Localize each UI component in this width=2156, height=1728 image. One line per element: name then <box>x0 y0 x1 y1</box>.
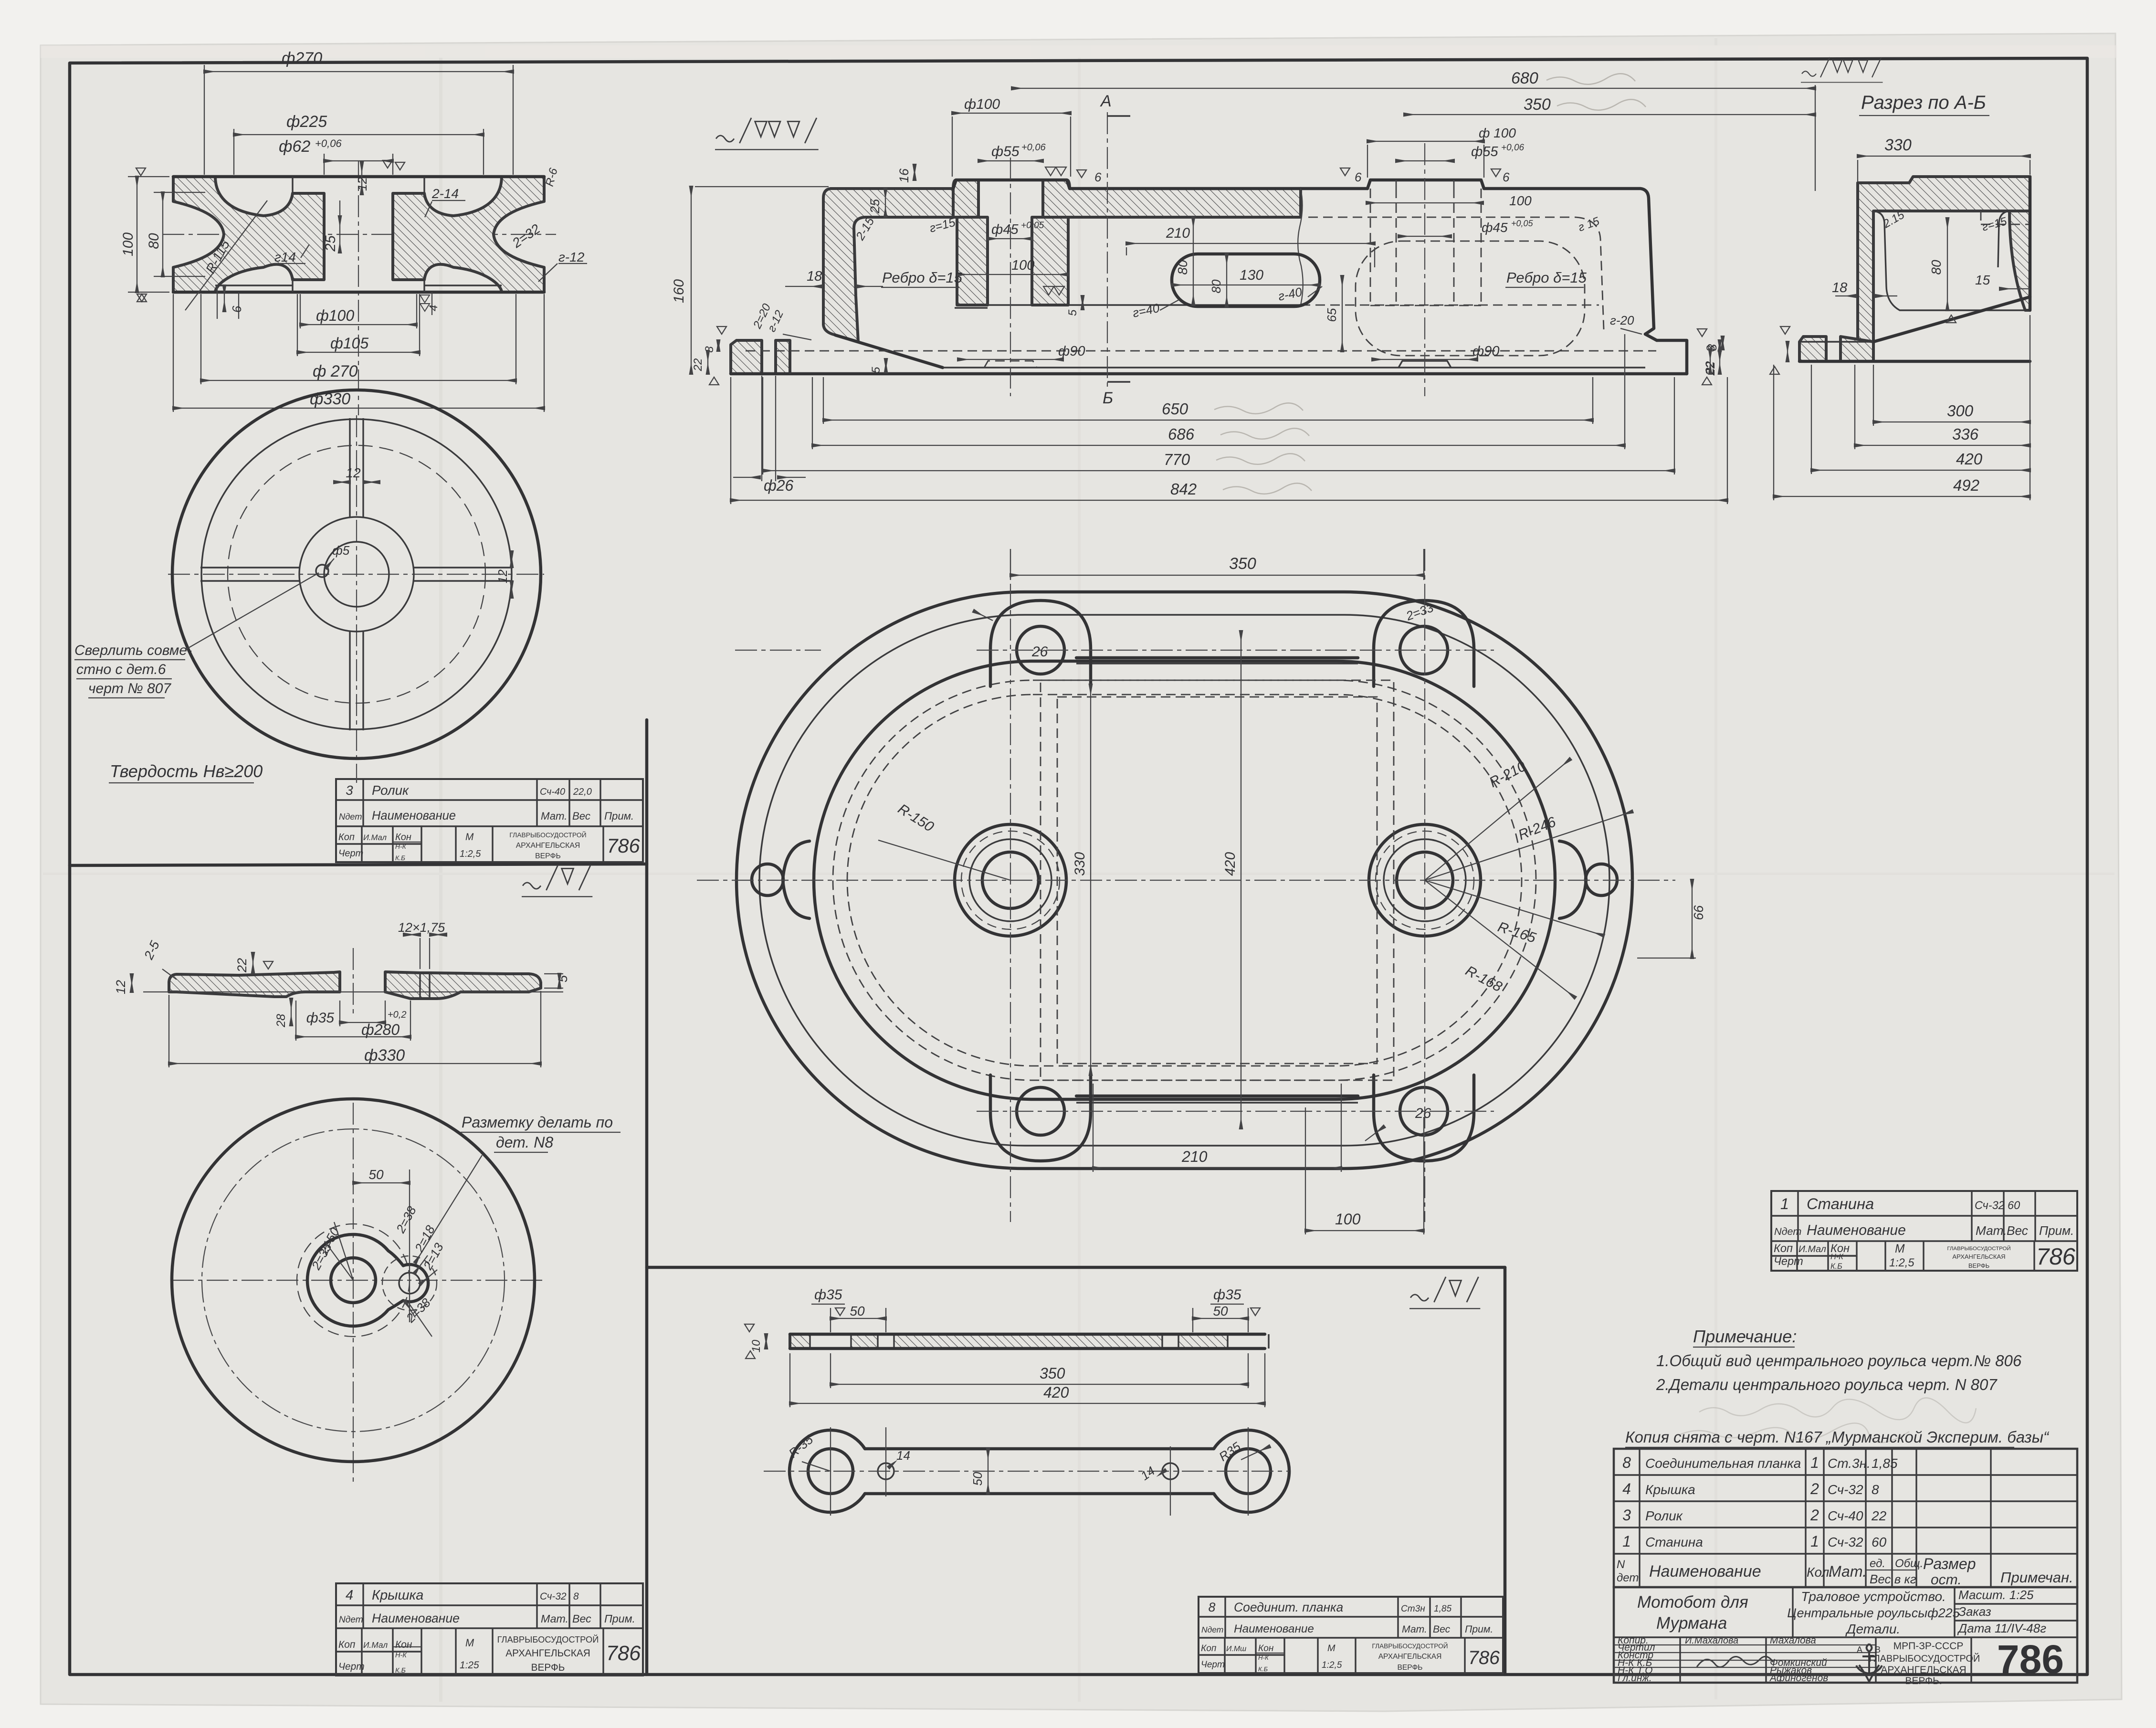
svg-text:Коп: Коп <box>1201 1644 1217 1654</box>
svg-text:1:2,5: 1:2,5 <box>460 849 481 859</box>
svg-text:Прим.: Прим. <box>604 810 634 822</box>
svg-text:Мат.: Мат. <box>541 810 567 822</box>
svg-text:786: 786 <box>606 1642 641 1665</box>
svg-text:Ст.3н.: Ст.3н. <box>1828 1456 1871 1471</box>
svg-text:Н-К: Н-К <box>395 843 407 850</box>
svg-text:4: 4 <box>346 1588 353 1603</box>
svg-text:Н-К: Н-К <box>395 1652 407 1659</box>
svg-text:Наименование: Наименование <box>1807 1222 1906 1238</box>
svg-text:Копия снята с черт. N167 „Мур: Копия снята с черт. N167 „Мурманской Экс… <box>1625 1428 2050 1446</box>
svg-text:Станина: Станина <box>1645 1535 1703 1549</box>
svg-text:80: 80 <box>1175 260 1190 275</box>
svg-text:ГЛАВРЫБОСУДОСТРОЙ: ГЛАВРЫБОСУДОСТРОЙ <box>509 831 586 839</box>
svg-text:АРХАНГЕЛЬСКАЯ: АРХАНГЕЛЬСКАЯ <box>505 1648 590 1659</box>
svg-text:ф55: ф55 <box>1471 144 1498 159</box>
svg-text:2-14: 2-14 <box>431 186 459 201</box>
svg-text:ГЛАВРЫБОСУДОСТРОЙ: ГЛАВРЫБОСУДОСТРОЙ <box>497 1634 599 1644</box>
svg-text:12: 12 <box>355 177 369 191</box>
svg-text:100: 100 <box>1509 193 1532 208</box>
svg-text:Мотобот для: Мотобот для <box>1637 1593 1748 1612</box>
svg-text:Наименование: Наименование <box>372 809 456 822</box>
svg-text:80: 80 <box>146 233 162 249</box>
svg-text:АРХАНГЕЛЬСКАЯ: АРХАНГЕЛЬСКАЯ <box>1881 1665 1966 1675</box>
svg-text:5: 5 <box>1066 309 1079 316</box>
svg-text:АРХАНГЕЛЬСКАЯ: АРХАНГЕЛЬСКАЯ <box>1378 1653 1442 1661</box>
svg-text:100: 100 <box>120 232 136 256</box>
svg-text:26: 26 <box>1031 644 1048 660</box>
svg-text:786: 786 <box>1997 1637 2064 1682</box>
svg-text:Nдет: Nдет <box>339 1615 363 1625</box>
svg-text:Вес: Вес <box>572 1612 591 1625</box>
svg-text:Коп: Коп <box>338 1639 356 1650</box>
svg-text:ф35: ф35 <box>814 1287 842 1303</box>
svg-text:И.Мш: И.Мш <box>1226 1645 1246 1653</box>
svg-text:1: 1 <box>1622 1533 1631 1550</box>
svg-text:Мурмана: Мурмана <box>1656 1614 1727 1633</box>
svg-text:Черт: Черт <box>338 1661 365 1672</box>
svg-text:492: 492 <box>1953 476 1979 494</box>
svg-text:12: 12 <box>346 465 361 480</box>
svg-text:И.Мал: И.Мал <box>363 833 387 842</box>
svg-text:8: 8 <box>1622 1454 1631 1471</box>
svg-text:4: 4 <box>1622 1480 1631 1497</box>
svg-text:К.Б: К.Б <box>395 1667 406 1675</box>
svg-text:786: 786 <box>607 834 640 857</box>
svg-text:Траловое устройство.: Траловое устройство. <box>1801 1589 1946 1604</box>
svg-text:12: 12 <box>114 980 128 994</box>
svg-text:6: 6 <box>230 306 244 313</box>
svg-text:14: 14 <box>896 1448 910 1463</box>
svg-text:50: 50 <box>850 1304 865 1318</box>
svg-text:210: 210 <box>1181 1148 1208 1165</box>
svg-text:Наименование: Наименование <box>372 1611 460 1625</box>
svg-text:А: А <box>1857 1645 1862 1654</box>
svg-text:Черт: Черт <box>1774 1255 1803 1267</box>
svg-text:ост.: ост. <box>1931 1572 1962 1588</box>
svg-text:Ролик: Ролик <box>1645 1508 1683 1523</box>
svg-text:4: 4 <box>427 305 440 311</box>
svg-text:Соединит. планка: Соединит. планка <box>1234 1600 1343 1614</box>
svg-text:6: 6 <box>1503 170 1510 184</box>
svg-text:12×1,75: 12×1,75 <box>398 920 445 935</box>
svg-text:ф62: ф62 <box>279 137 310 156</box>
svg-text:Разметку делать по: Разметку делать по <box>462 1114 613 1131</box>
svg-text:1: 1 <box>1780 1195 1789 1212</box>
svg-text:ГЛАВРЫБОСУДОСТРОЙ: ГЛАВРЫБОСУДОСТРОЙ <box>1947 1245 2010 1252</box>
svg-text:ф105: ф105 <box>330 335 368 352</box>
svg-text:2.Детали центрального роульса: 2.Детали центрального роульса черт. N 80… <box>1656 1376 1998 1393</box>
svg-text:1.Общий вид центрального ро: 1.Общий вид центрального роульса черт.№ … <box>1656 1352 2022 1370</box>
svg-text:650: 650 <box>1162 400 1188 418</box>
svg-text:Кон: Кон <box>395 1639 412 1650</box>
svg-text:Масшт. 1:25: Масшт. 1:25 <box>1958 1588 2034 1602</box>
svg-text:И.Мал: И.Мал <box>1798 1244 1826 1254</box>
svg-text:Центральные роульсыф225: Центральные роульсыф225 <box>1787 1606 1960 1620</box>
svg-text:ВЕРФЬ: ВЕРФЬ <box>535 852 561 860</box>
svg-text:М: М <box>1327 1643 1336 1654</box>
svg-text:66: 66 <box>1691 905 1706 920</box>
svg-text:28: 28 <box>274 1014 288 1028</box>
svg-text:стно с дет.6: стно с дет.6 <box>76 662 166 677</box>
svg-text:8: 8 <box>1209 1600 1216 1614</box>
svg-text:130: 130 <box>1240 267 1263 283</box>
svg-text:12: 12 <box>495 569 510 583</box>
svg-text:22: 22 <box>235 958 249 973</box>
svg-text:26: 26 <box>1415 1106 1431 1121</box>
svg-text:330: 330 <box>1884 136 1912 154</box>
svg-text:15: 15 <box>1975 273 1990 287</box>
svg-text:3: 3 <box>1622 1507 1631 1524</box>
svg-text:+0,2: +0,2 <box>388 1010 406 1020</box>
svg-text:8: 8 <box>1705 344 1719 351</box>
svg-text:1:2,5: 1:2,5 <box>1322 1660 1342 1670</box>
svg-text:160: 160 <box>671 279 687 303</box>
svg-text:Твердость Нв≥200: Твердость Нв≥200 <box>110 761 263 781</box>
svg-text:1: 1 <box>1810 1454 1819 1471</box>
svg-text:65: 65 <box>1325 308 1339 322</box>
svg-text:16: 16 <box>897 168 911 183</box>
svg-text:ГЛАВРЫБОСУДОСТРОЙ: ГЛАВРЫБОСУДОСТРОЙ <box>1372 1643 1448 1650</box>
svg-text:Мат.: Мат. <box>1829 1563 1867 1580</box>
svg-text:80: 80 <box>1209 279 1223 293</box>
svg-text:дет. N8: дет. N8 <box>496 1134 553 1151</box>
svg-text:Вес: Вес <box>1433 1624 1451 1635</box>
svg-text:1:2,5: 1:2,5 <box>1889 1256 1914 1269</box>
svg-text:350: 350 <box>1229 555 1256 573</box>
svg-text:8: 8 <box>573 1591 579 1602</box>
svg-text:И.Махалова: И.Махалова <box>1685 1635 1738 1646</box>
svg-text:ф 100: ф 100 <box>1479 126 1516 140</box>
svg-text:Мат.: Мат. <box>1976 1223 2007 1238</box>
svg-text:1,85: 1,85 <box>1872 1456 1898 1471</box>
svg-text:Заказ: Заказ <box>1958 1604 1991 1619</box>
svg-text:Ст3н: Ст3н <box>1401 1604 1425 1614</box>
svg-text:ВЕРФЬ: ВЕРФЬ <box>1968 1262 1989 1269</box>
svg-text:МРП-ЗР-СССР: МРП-ЗР-СССР <box>1893 1641 1964 1652</box>
svg-text:Общ.: Общ. <box>1895 1557 1923 1570</box>
svg-text:ф330: ф330 <box>364 1046 405 1064</box>
svg-text:Кон: Кон <box>395 832 411 843</box>
svg-text:Nдет: Nдет <box>339 811 362 822</box>
svg-text:черт № 807: черт № 807 <box>88 681 171 696</box>
svg-text:770: 770 <box>1164 451 1190 468</box>
svg-text:Детали.: Детали. <box>1845 1622 1900 1636</box>
svg-text:+0,06: +0,06 <box>1021 142 1046 153</box>
svg-text:60: 60 <box>2008 1199 2020 1212</box>
svg-text:100: 100 <box>1335 1211 1361 1228</box>
svg-text:Кон: Кон <box>1258 1644 1274 1654</box>
svg-text:Гл.инж.: Гл.инж. <box>1618 1673 1652 1684</box>
svg-text:Наименование: Наименование <box>1649 1562 1761 1580</box>
svg-text:В: В <box>1875 1645 1881 1654</box>
svg-text:+0,06: +0,06 <box>1501 143 1525 153</box>
svg-text:Сч-32: Сч-32 <box>1828 1482 1863 1497</box>
svg-text:18: 18 <box>1832 280 1847 295</box>
svg-text:25: 25 <box>868 199 882 214</box>
svg-text:ф270: ф270 <box>282 49 322 67</box>
svg-text:ГЛАВРЫБОСУДОСТРОЙ: ГЛАВРЫБОСУДОСТРОЙ <box>1869 1653 1980 1664</box>
svg-text:330: 330 <box>1072 852 1088 876</box>
svg-text:Мат.: Мат. <box>1402 1624 1427 1635</box>
svg-text:336: 336 <box>1952 425 1979 443</box>
svg-text:+0,06: +0,06 <box>315 137 342 149</box>
svg-text:Махалова: Махалова <box>1770 1635 1816 1646</box>
svg-text:50: 50 <box>970 1472 985 1486</box>
svg-text:Черт: Черт <box>338 848 363 859</box>
svg-text:22,0: 22,0 <box>573 787 592 797</box>
svg-text:г-20: г-20 <box>1610 313 1634 327</box>
svg-text:ВЕРФЬ: ВЕРФЬ <box>1398 1664 1423 1672</box>
svg-text:Размер: Размер <box>1923 1555 1976 1572</box>
svg-text:+0,05: +0,05 <box>1511 219 1534 228</box>
svg-text:N: N <box>1617 1558 1625 1571</box>
svg-text:Примечан.: Примечан. <box>2000 1569 2073 1586</box>
svg-text:3: 3 <box>346 783 353 798</box>
svg-text:420: 420 <box>1043 1384 1069 1401</box>
svg-text:ф100: ф100 <box>316 307 354 324</box>
svg-text:г14: г14 <box>274 250 296 264</box>
svg-text:22: 22 <box>692 358 705 372</box>
svg-text:350: 350 <box>1524 95 1551 114</box>
svg-text:25: 25 <box>323 235 338 252</box>
svg-text:Соединительная планка: Соединительная планка <box>1645 1456 1801 1471</box>
svg-text:ф55: ф55 <box>991 144 1020 159</box>
svg-text:350: 350 <box>1040 1365 1065 1382</box>
svg-text:6: 6 <box>1094 170 1102 184</box>
svg-text:Крышка: Крышка <box>372 1588 423 1603</box>
svg-text:АРХАНГЕЛЬСКАЯ: АРХАНГЕЛЬСКАЯ <box>1952 1253 2005 1260</box>
svg-text:Н-К: Н-К <box>1258 1654 1269 1661</box>
svg-text:ф225: ф225 <box>286 113 327 131</box>
svg-text:ф35: ф35 <box>306 1010 335 1026</box>
svg-text:Б: Б <box>1103 389 1113 407</box>
svg-text:Прим.: Прим. <box>1465 1624 1493 1635</box>
svg-text:ф90: ф90 <box>1472 344 1500 359</box>
svg-text:Коп: Коп <box>1774 1242 1793 1254</box>
svg-text:5: 5 <box>870 367 883 373</box>
svg-text:22: 22 <box>1871 1508 1887 1523</box>
svg-text:80: 80 <box>1929 260 1944 275</box>
svg-text:Н-К: Н-К <box>1830 1253 1844 1261</box>
svg-text:786: 786 <box>1468 1647 1500 1668</box>
svg-text:1,85: 1,85 <box>1434 1604 1451 1614</box>
svg-text:842: 842 <box>1170 480 1197 498</box>
svg-text:5: 5 <box>556 975 570 982</box>
svg-text:50: 50 <box>1213 1304 1228 1318</box>
svg-text:18: 18 <box>807 269 822 284</box>
svg-text:ф280: ф280 <box>361 1021 400 1038</box>
svg-text:50: 50 <box>368 1167 384 1182</box>
svg-text:ф 270: ф 270 <box>313 362 358 380</box>
svg-text:ф100: ф100 <box>964 96 1000 112</box>
svg-text:ВЕРФЬ: ВЕРФЬ <box>531 1662 565 1673</box>
svg-text:Дата 11/IV-48г: Дата 11/IV-48г <box>1957 1621 2046 1635</box>
svg-text:Сч-40: Сч-40 <box>540 787 565 797</box>
svg-text:1:25: 1:25 <box>460 1660 479 1671</box>
svg-text:ф35: ф35 <box>1213 1287 1241 1303</box>
svg-text:Вес: Вес <box>572 810 590 822</box>
svg-text:60: 60 <box>1872 1535 1887 1549</box>
svg-text:Крышка: Крышка <box>1645 1482 1695 1497</box>
svg-text:ф45: ф45 <box>1482 220 1508 235</box>
svg-text:Ребро δ=15: Ребро δ=15 <box>882 269 963 286</box>
svg-text:Сверлить совме-: Сверлить совме- <box>74 643 192 658</box>
svg-text:А: А <box>1100 92 1112 110</box>
svg-text:Вес в кг: Вес в кг <box>1870 1572 1916 1586</box>
svg-text:8: 8 <box>703 346 716 353</box>
svg-text:Сч-32: Сч-32 <box>1975 1199 2005 1212</box>
svg-text:М: М <box>465 1637 474 1649</box>
svg-text:2: 2 <box>1810 1507 1819 1524</box>
svg-text:АРХАНГЕЛЬСКАЯ: АРХАНГЕЛЬСКАЯ <box>516 842 580 850</box>
svg-text:100: 100 <box>1011 258 1034 273</box>
svg-text:680: 680 <box>1511 69 1538 87</box>
svg-text:И.Мал: И.Мал <box>363 1640 388 1650</box>
svg-text:ВЕРФЬ.: ВЕРФЬ. <box>1905 1675 1942 1686</box>
svg-text:ф5: ф5 <box>332 543 350 558</box>
svg-text:ед.: ед. <box>1870 1557 1885 1570</box>
svg-text:420: 420 <box>1956 450 1983 468</box>
svg-text:М: М <box>465 832 474 843</box>
svg-text:Прим.: Прим. <box>2039 1223 2074 1238</box>
svg-text:ф90: ф90 <box>1058 344 1085 359</box>
svg-text:210: 210 <box>1166 225 1190 241</box>
svg-text:Коп: Коп <box>338 832 355 843</box>
svg-text:Станина: Станина <box>1807 1195 1874 1212</box>
svg-text:К.Б: К.Б <box>1258 1665 1268 1673</box>
svg-text:Сч-40: Сч-40 <box>1828 1508 1863 1523</box>
svg-text:420: 420 <box>1222 852 1238 876</box>
svg-text:К.Б: К.Б <box>1830 1262 1842 1271</box>
svg-text:дет: дет <box>1617 1571 1639 1584</box>
svg-text:Ролик: Ролик <box>372 783 409 798</box>
svg-text:6: 6 <box>1355 170 1362 184</box>
svg-text:Прим.: Прим. <box>604 1612 635 1625</box>
svg-text:686: 686 <box>1168 425 1195 443</box>
svg-text:Сч-32: Сч-32 <box>1828 1535 1863 1549</box>
svg-text:8: 8 <box>1872 1482 1879 1497</box>
svg-text:Афиногенов: Афиногенов <box>1769 1673 1828 1684</box>
svg-text:ф26: ф26 <box>764 477 794 494</box>
svg-text:Ребро δ=15: Ребро δ=15 <box>1506 269 1587 286</box>
svg-text:Nдет: Nдет <box>1201 1625 1223 1634</box>
svg-text:300: 300 <box>1947 402 1974 420</box>
svg-text:Черт: Черт <box>1201 1660 1225 1670</box>
svg-text:+0,05: +0,05 <box>1021 221 1044 231</box>
svg-text:2: 2 <box>1810 1480 1819 1497</box>
svg-text:10: 10 <box>750 1339 763 1352</box>
svg-text:г-12: г-12 <box>558 250 585 264</box>
svg-text:Разрез по А-Б: Разрез по А-Б <box>1861 92 1986 113</box>
svg-text:Примечание:: Примечание: <box>1693 1327 1797 1346</box>
svg-text:М: М <box>1895 1243 1905 1255</box>
svg-text:Сч-32: Сч-32 <box>540 1591 567 1602</box>
svg-text:786: 786 <box>2036 1244 2076 1270</box>
svg-text:К.Б: К.Б <box>395 854 405 862</box>
svg-text:Nдет: Nдет <box>1774 1225 1801 1237</box>
svg-text:Наименование: Наименование <box>1234 1623 1314 1635</box>
svg-text:Вес: Вес <box>2007 1223 2028 1238</box>
svg-text:Мат.: Мат. <box>541 1612 568 1625</box>
svg-text:ф45: ф45 <box>991 222 1019 237</box>
svg-text:1: 1 <box>1810 1533 1819 1550</box>
